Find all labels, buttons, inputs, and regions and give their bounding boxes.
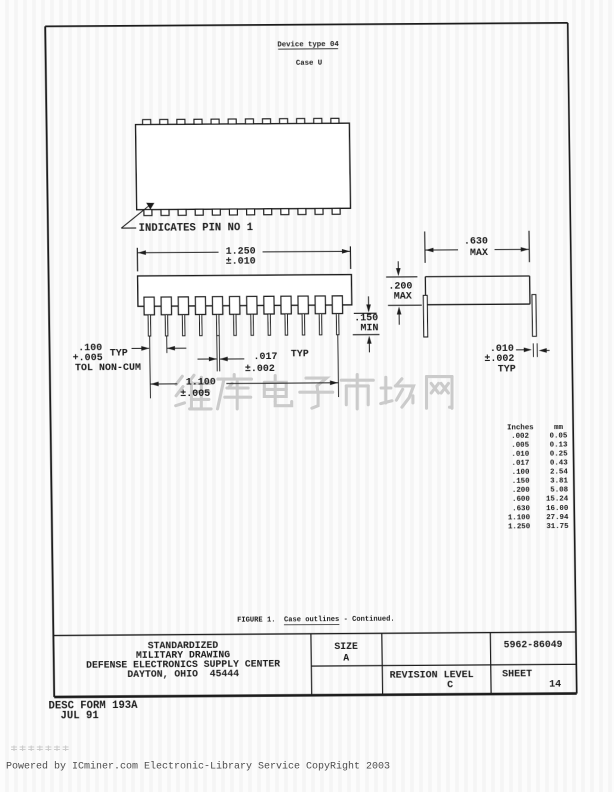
svg-text:MIN: MIN: [360, 323, 378, 334]
svg-text:Powered by ICminer.com Electro: Powered by ICminer.com Electronic-Librar…: [6, 760, 390, 772]
svg-text:C: C: [447, 680, 453, 691]
svg-text:TYP: TYP: [291, 349, 309, 360]
svg-text:0.43: 0.43: [550, 460, 568, 468]
svg-text:.630: .630: [512, 505, 530, 513]
svg-text:SIZE: SIZE: [334, 641, 358, 652]
svg-text:Device type 04: Device type 04: [277, 41, 339, 49]
svg-text:TYP: TYP: [110, 349, 128, 360]
svg-text:0.05: 0.05: [550, 432, 568, 440]
svg-text:.630: .630: [464, 237, 488, 248]
svg-text:27.94: 27.94: [546, 514, 569, 522]
svg-text:A: A: [343, 652, 349, 663]
svg-text:FIGURE 1. Case outlines - Con: FIGURE 1. Case outlines - Continued.: [237, 616, 395, 625]
svg-text:.017: .017: [253, 352, 277, 363]
svg-text:2.54: 2.54: [550, 469, 568, 477]
svg-text:.200: .200: [512, 487, 530, 495]
svg-text:16.00: 16.00: [546, 505, 569, 513]
svg-text:Case U: Case U: [296, 60, 322, 68]
svg-text:.010: .010: [511, 451, 529, 459]
svg-text:0.25: 0.25: [550, 451, 568, 459]
svg-text:TOL NON-CUM: TOL NON-CUM: [75, 363, 141, 374]
svg-text:REVISION LEVEL: REVISION LEVEL: [390, 670, 474, 682]
svg-text:TYP: TYP: [498, 364, 516, 375]
svg-text:1.100: 1.100: [508, 514, 531, 522]
svg-text:.017: .017: [512, 460, 530, 468]
svg-text:MAX: MAX: [470, 248, 488, 259]
svg-text:JUL 91: JUL 91: [61, 710, 99, 722]
svg-text:1.100: 1.100: [186, 377, 216, 388]
svg-text:INDICATES PIN NO 1: INDICATES PIN NO 1: [139, 222, 254, 235]
svg-text:1.250: 1.250: [508, 523, 531, 531]
svg-text:.150: .150: [512, 478, 530, 486]
svg-text:.005: .005: [511, 442, 529, 450]
svg-text:31.75: 31.75: [546, 523, 569, 531]
svg-text:0.13: 0.13: [550, 441, 568, 449]
svg-text:14: 14: [549, 680, 561, 691]
svg-text:±.002: ±.002: [245, 364, 275, 375]
svg-text:±.005: ±.005: [180, 389, 210, 400]
svg-text:.002: .002: [511, 433, 529, 441]
svg-text:5.08: 5.08: [550, 487, 568, 495]
svg-text:15.24: 15.24: [546, 496, 569, 504]
svg-text:.600: .600: [512, 496, 530, 504]
svg-text:DAYTON, OHIO 45444: DAYTON, OHIO 45444: [127, 668, 239, 680]
svg-text:3.81: 3.81: [550, 478, 568, 486]
svg-text:MAX: MAX: [394, 292, 412, 303]
svg-text:5962-86049: 5962-86049: [504, 639, 563, 650]
svg-text:±.010: ±.010: [226, 256, 256, 267]
svg-text:mm: mm: [554, 424, 564, 432]
svg-text:SHEET: SHEET: [502, 669, 532, 680]
svg-text:Inches: Inches: [507, 424, 534, 432]
svg-text:.100: .100: [512, 469, 530, 477]
